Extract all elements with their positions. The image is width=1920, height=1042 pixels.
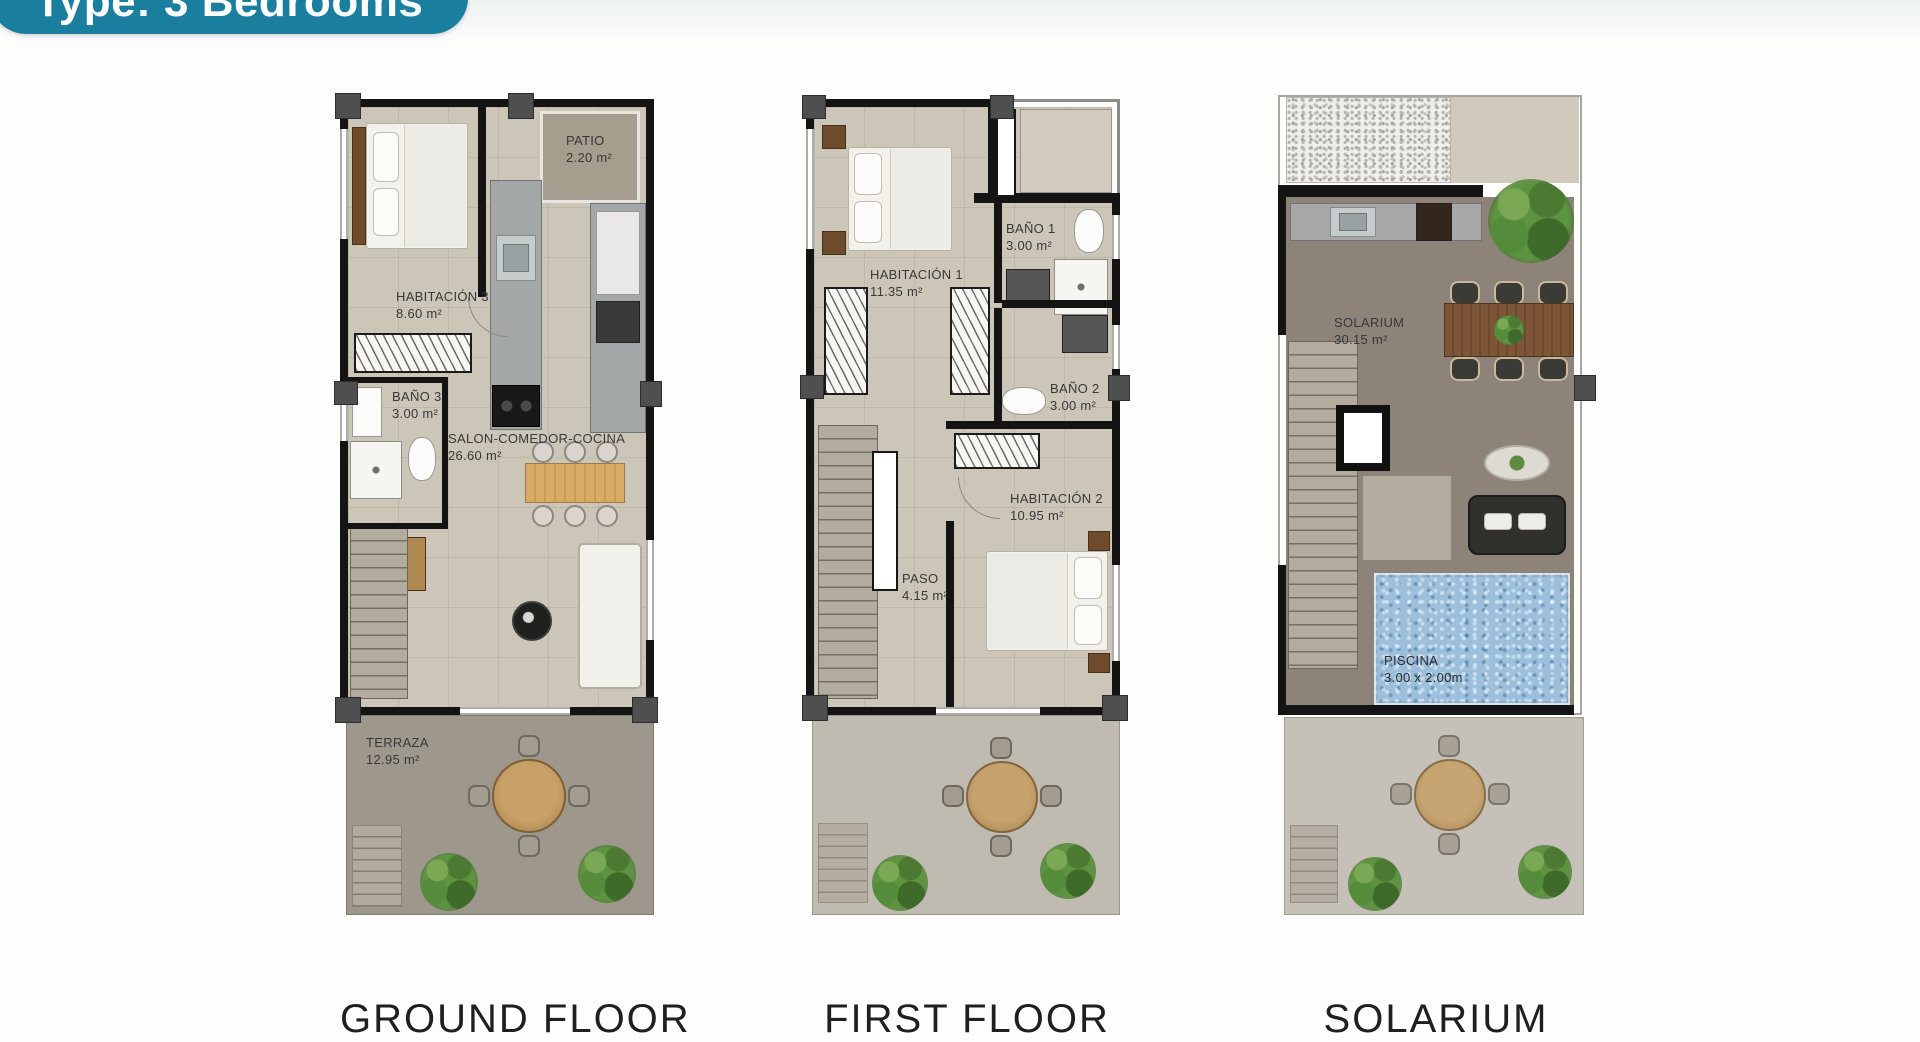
exterior-stairs — [1290, 825, 1338, 903]
wall — [946, 421, 1120, 429]
pillar — [334, 381, 358, 405]
exterior-stairs — [352, 825, 402, 907]
dining-table — [525, 463, 625, 503]
console-table — [406, 537, 426, 591]
duvet — [404, 125, 466, 247]
sink-basin — [1339, 213, 1367, 231]
chair — [990, 737, 1012, 759]
table-plant — [1494, 315, 1524, 345]
room-label-salon: SALON-COMEDOR-COCINA 26.60 m² — [448, 431, 625, 464]
plant — [1348, 857, 1402, 911]
oven — [596, 301, 640, 343]
chair — [596, 505, 618, 527]
chair — [1450, 281, 1480, 305]
terrace-table — [492, 759, 566, 833]
sofa-cushion — [1518, 513, 1546, 530]
chair — [1494, 357, 1524, 381]
wall — [340, 99, 654, 107]
chair — [990, 835, 1012, 857]
pillar — [1108, 375, 1130, 401]
wall — [946, 521, 954, 711]
pillar — [1574, 375, 1596, 401]
outdoor-kitchen-counter — [1290, 203, 1482, 241]
room-label-bano-2: BAÑO 2 3.00 m² — [1050, 381, 1099, 414]
room-label-piscina: PISCINA 3.00 x 2.00m — [1384, 653, 1463, 686]
wall — [806, 99, 1006, 107]
room-label-solarium: SOLARIUM 30.15 m² — [1334, 315, 1404, 348]
nightstand — [1088, 653, 1110, 673]
toilet — [408, 437, 436, 481]
floorplan-sheet: { "badge": { "label": "Type: 3 Bedrooms"… — [0, 0, 1920, 1024]
room-label-habitacion-3: HABITACIÓN 3 8.60 m² — [396, 289, 489, 322]
pillar — [335, 93, 361, 119]
chair — [1390, 783, 1412, 805]
terrace-table — [1414, 759, 1486, 831]
wall — [1286, 705, 1574, 715]
shower — [350, 441, 402, 499]
plant — [1040, 843, 1096, 899]
pillar — [1102, 695, 1128, 721]
pillow — [854, 153, 882, 195]
pillar — [800, 375, 824, 399]
parapet-line — [1117, 102, 1120, 197]
pillar — [990, 95, 1014, 119]
wardrobe — [824, 287, 868, 395]
toilet — [1002, 387, 1046, 415]
sink-basin — [503, 244, 529, 272]
room-label-bano-3: BAÑO 3 3.00 m² — [392, 389, 441, 422]
kitchen-sink — [496, 235, 536, 281]
chair — [1040, 785, 1062, 807]
type-badge-label: Type: 3 Bedrooms — [35, 0, 424, 27]
caption-ground-floor: GROUND FLOOR — [340, 997, 662, 1042]
window — [1112, 215, 1120, 259]
wall — [1002, 300, 1120, 308]
wall — [1278, 185, 1483, 197]
plant — [872, 855, 928, 911]
window — [806, 129, 814, 249]
wall — [1278, 185, 1286, 335]
chair — [1438, 833, 1460, 855]
plant — [578, 845, 636, 903]
pillow — [1074, 557, 1102, 599]
wall — [988, 107, 996, 203]
fridge — [596, 211, 640, 295]
window — [1112, 565, 1120, 661]
wall — [994, 203, 1002, 303]
caption-solarium: SOLARIUM — [1278, 997, 1594, 1042]
plant — [420, 853, 478, 911]
sofa — [578, 543, 642, 689]
pillow — [373, 132, 399, 182]
sliding-door — [460, 707, 570, 715]
ground-floor-plan: HABITACIÓN 3 8.60 m² PATIO 2.20 m² BAÑO … — [340, 85, 662, 923]
pillar — [640, 381, 662, 407]
wall — [348, 377, 446, 383]
wall — [478, 107, 486, 297]
stair-void — [872, 451, 898, 591]
toilet — [1074, 209, 1104, 253]
room-label-patio: PATIO 2.20 m² — [566, 133, 612, 166]
window — [646, 540, 654, 640]
pillow — [373, 188, 399, 236]
pillar — [632, 697, 658, 723]
wall — [994, 308, 1002, 421]
stairs — [1288, 341, 1358, 669]
wardrobe — [354, 333, 472, 373]
outdoor-sink — [1330, 207, 1376, 237]
chair — [468, 785, 490, 807]
chair — [564, 505, 586, 527]
sliding-door — [936, 707, 1040, 715]
outdoor-sofa — [1468, 495, 1566, 555]
sofa-cushion — [1484, 513, 1512, 530]
stair-void — [1362, 475, 1452, 561]
exterior-stairs — [818, 823, 868, 903]
chair — [1450, 357, 1480, 381]
pillar — [335, 697, 361, 723]
nightstand — [1088, 531, 1110, 551]
stair-landing-inner — [1344, 413, 1382, 463]
nightstand — [822, 231, 846, 255]
chair — [1538, 357, 1568, 381]
gravel-area — [1286, 97, 1451, 183]
room-label-bano-1: BAÑO 1 3.00 m² — [1006, 221, 1055, 254]
plant — [1488, 179, 1574, 263]
pillow — [1074, 605, 1102, 645]
chair — [1488, 783, 1510, 805]
stair-landing — [1336, 405, 1390, 471]
wardrobe — [950, 287, 990, 395]
pillow — [854, 201, 882, 243]
covered-area — [1020, 109, 1112, 193]
plant — [1518, 845, 1572, 899]
room-label-paso: PASO 4.15 m² — [902, 571, 948, 604]
terrace-table — [966, 761, 1038, 833]
chair — [532, 505, 554, 527]
chair — [1538, 281, 1568, 305]
shaft — [996, 109, 1016, 197]
wall — [348, 523, 448, 529]
tiled-area — [1451, 97, 1579, 183]
solarium-plan: SOLARIUM 30.15 m² PISCINA 3.00 x 2.00m — [1278, 85, 1594, 923]
first-floor-plan: HABITACIÓN 1 11.35 m² BAÑO 1 3.00 m² BAÑ… — [806, 85, 1128, 923]
room-label-terraza: TERRAZA 12.95 m² — [366, 735, 429, 768]
stairs — [818, 425, 878, 699]
pillar — [802, 695, 828, 721]
duvet — [890, 149, 950, 249]
chair — [1494, 281, 1524, 305]
duvet — [988, 553, 1068, 649]
chair — [518, 835, 540, 857]
grill — [1416, 203, 1452, 241]
cooktop — [492, 385, 540, 427]
caption-first-floor: FIRST FLOOR — [806, 997, 1128, 1042]
wall — [1278, 565, 1286, 715]
wardrobe — [954, 433, 1040, 469]
chair — [518, 735, 540, 757]
stairs — [350, 527, 408, 699]
vanity — [1062, 315, 1108, 353]
coffee-table — [1484, 445, 1550, 481]
coffee-table — [512, 601, 552, 641]
chair — [1438, 735, 1460, 757]
room-label-habitacion-2: HABITACIÓN 2 10.95 m² — [1010, 491, 1103, 524]
parapet-line — [1006, 99, 1120, 102]
room-label-habitacion-1: HABITACIÓN 1 11.35 m² — [870, 267, 963, 300]
bed-headboard — [352, 127, 366, 245]
window — [340, 129, 348, 239]
chair — [942, 785, 964, 807]
pillar — [802, 95, 826, 119]
window — [1112, 325, 1120, 369]
chair — [568, 785, 590, 807]
type-badge: Type: 3 Bedrooms — [0, 0, 468, 34]
pillar — [508, 93, 534, 119]
nightstand — [822, 125, 846, 149]
